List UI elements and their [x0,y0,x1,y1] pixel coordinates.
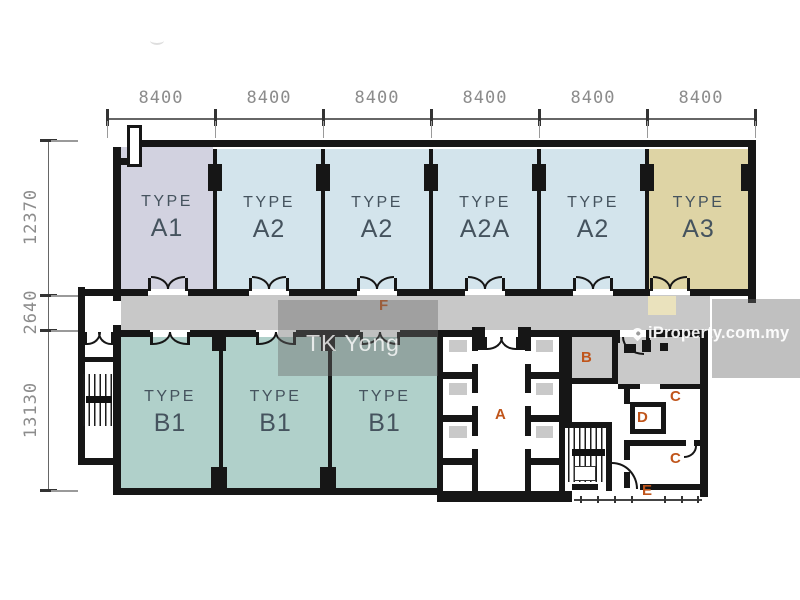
column-block [211,467,227,488]
zone-letter-b: B [581,349,592,366]
wall-right-wing-outer [700,330,708,497]
door-arc [592,276,610,289]
dim-ext-line [51,295,78,297]
wall-top-block-bottom [188,289,249,296]
door-arc [376,276,394,289]
dim-ext-line [431,121,432,138]
faint-watermark-mark [150,36,164,45]
room-d [630,402,666,434]
door-unit-a2-3 [573,276,613,290]
fixture [624,344,636,353]
column-block [741,164,756,191]
lift-door-gap [472,436,478,449]
wall-lift-separator [437,458,478,465]
door-arc [500,337,516,350]
door-arc [98,332,112,345]
lift-door-gap [525,436,531,449]
dim-ext-line [323,121,324,138]
column-block [316,164,330,191]
door-arc [268,276,286,289]
unit-a2a: TYPE A2A [433,149,537,289]
dim-label-left-1: 12370 [21,189,41,245]
door-unit-a2-1 [249,276,289,290]
unit-a2-2: TYPE A2 [325,149,429,289]
zone-letter-c1: C [670,388,681,405]
unit-b1-1-code: B1 [154,409,187,438]
unit-a2-3-code: A2 [577,215,610,244]
zone-letter-c2: C [670,450,681,467]
wall-lift-separator [437,415,478,422]
unit-a3: TYPE A3 [649,149,748,289]
wall-opening [113,301,121,325]
wall-top [140,140,756,147]
zone-letter-e: E [642,482,652,499]
zone-letter-d: D [637,409,648,426]
dim-label-left-2: 2640 [21,290,41,335]
edge-tick [697,496,699,503]
lift-door-gap [525,393,531,406]
dim-ext-line [51,330,78,332]
unit-b1-3-code: B1 [368,409,401,438]
dim-ext-line [647,121,648,138]
wall-core-bottom [437,491,572,502]
unit-a2a-code: A2A [460,215,510,244]
column-block [640,164,654,191]
wall-toilet-v [624,446,630,460]
iproperty-logo-text: iProperty.com.my [648,324,789,343]
unit-a3-door-recess [648,296,676,315]
door-arc [669,276,687,289]
dim-line-left [48,140,50,490]
unit-a3-code: A3 [682,215,715,244]
wall-bottom-left-block [113,488,437,495]
edge-tick [664,496,666,503]
wall-stair-tower-mid [81,357,113,362]
wall-wing-bottom [572,484,598,490]
dim-ext-line [51,140,78,142]
lift-car [449,340,467,352]
dim-label-top-4: 8400 [440,88,530,108]
column-block [424,164,438,191]
unit-a2-2-code: A2 [361,215,394,244]
lift-door-gap [525,351,531,364]
wall-corridor-bottom [113,330,150,337]
edge-tick [681,496,683,503]
dim-ext-line [755,121,756,138]
wall-top-block-bottom [85,289,148,296]
lift-car [449,426,467,438]
lift-car [449,383,467,395]
dim-ext-line [51,490,78,492]
iproperty-logo: iProperty.com.my [632,324,789,343]
door-unit-a2-2 [357,276,397,290]
dim-label-top-5: 8400 [548,88,638,108]
door-frame [616,330,620,343]
fixture [660,343,668,351]
wall-lift-separator [437,372,478,379]
stairs-landing-bar [86,396,112,403]
wall-notch [127,125,142,167]
wall-unit-divider [219,337,223,488]
map-pin-icon [630,326,646,342]
dim-ext-line [215,121,216,138]
unit-b1-1: TYPE B1 [121,337,219,488]
unit-a2-3-type-label: TYPE [567,194,619,212]
edge-tick [614,496,616,503]
column-block [532,164,546,191]
door-unit-a3 [650,276,690,290]
column-block [320,467,336,488]
column-block [208,164,222,191]
unit-b1-1-type-label: TYPE [144,388,196,406]
door-frame-block [518,327,531,350]
dim-ext-line [539,121,540,138]
stairs-landing-bar [572,449,605,456]
lift-door-gap [472,351,478,364]
lift-car [536,426,553,438]
wall-top-block-bottom [289,289,357,296]
door-unit-a1 [148,276,188,290]
door-e-corridor [612,462,638,489]
stairs-landing [574,466,596,481]
unit-a2-1: TYPE A2 [217,149,321,289]
floor-plan-canvas: 8400 8400 8400 8400 8400 8400 12370 2640… [0,0,800,600]
wall-top-block-bottom [613,289,650,296]
dim-label-top-2: 8400 [224,88,314,108]
edge-tick [580,496,582,503]
door-stair-tower [84,332,114,346]
dim-label-left-3: 13130 [21,382,41,438]
dim-ext-line [107,121,108,138]
unit-a2-3: TYPE A2 [541,149,645,289]
unit-b1-2-type-label: TYPE [250,388,302,406]
wall-top-block-bottom [690,289,756,296]
wall-lift-separator [525,372,565,379]
door-arc [484,276,502,289]
wall-lift-separator [525,415,565,422]
door-arc [169,332,187,345]
unit-a1: TYPE A1 [121,147,213,289]
door-unit-a2a [465,276,505,290]
wall-corridor-bottom [530,330,616,337]
door-lift-lobby [484,337,519,351]
unit-b1-2-code: B1 [259,409,292,438]
wall-c-divider [624,440,686,446]
unit-a3-type-label: TYPE [673,194,725,212]
dim-label-top-6: 8400 [656,88,746,108]
door-arc [167,276,185,289]
wall-lift-separator [525,458,565,465]
wall-top-block-bottom [397,289,465,296]
edge-tick [631,496,633,503]
unit-a2-1-code: A2 [253,215,286,244]
zone-letter-a: A [495,406,506,423]
unit-a2-2-type-label: TYPE [351,194,403,212]
dim-label-top-3: 8400 [332,88,422,108]
lift-car [536,383,553,395]
wall-stair-tower-bottom [78,458,120,465]
door-room-c2 [684,446,697,458]
lift-door-gap [472,393,478,406]
unit-a2-1-type-label: TYPE [243,194,295,212]
wall-top-block-bottom [505,289,573,296]
wall-toilet-v [624,384,630,404]
door-unit-b1-1 [150,332,190,346]
room-b-floor [572,337,612,378]
lift-car [536,340,553,352]
unit-a1-type-label: TYPE [141,193,193,211]
edge-tick [597,496,599,503]
unit-a1-code: A1 [151,214,184,243]
unit-b1-3-type-label: TYPE [359,388,411,406]
watermark-tkyong: TK Yong [306,330,400,357]
unit-a2a-type-label: TYPE [459,194,511,212]
dim-label-top-1: 8400 [116,88,206,108]
column-block [212,330,226,351]
wall-room-b-bottom [565,378,618,384]
